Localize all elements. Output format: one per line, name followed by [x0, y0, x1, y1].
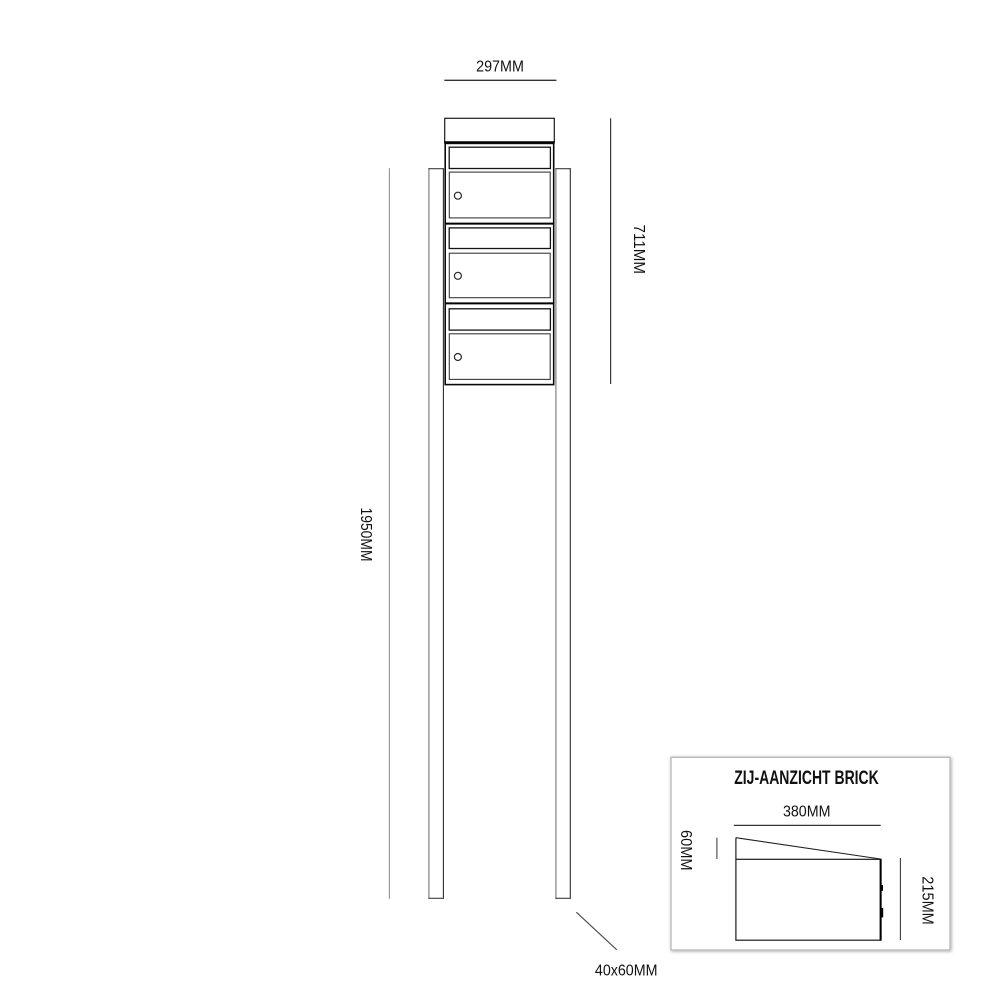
- svg-text:1950MM: 1950MM: [357, 508, 374, 562]
- svg-text:ZIJ-AANZICHT BRICK: ZIJ-AANZICHT BRICK: [734, 767, 879, 789]
- svg-text:380MM: 380MM: [783, 804, 831, 821]
- svg-text:297MM: 297MM: [476, 59, 524, 76]
- svg-text:215MM: 215MM: [919, 876, 936, 925]
- svg-text:711MM: 711MM: [630, 225, 647, 275]
- svg-text:40x60MM: 40x60MM: [595, 963, 658, 980]
- svg-text:60MM: 60MM: [677, 830, 694, 871]
